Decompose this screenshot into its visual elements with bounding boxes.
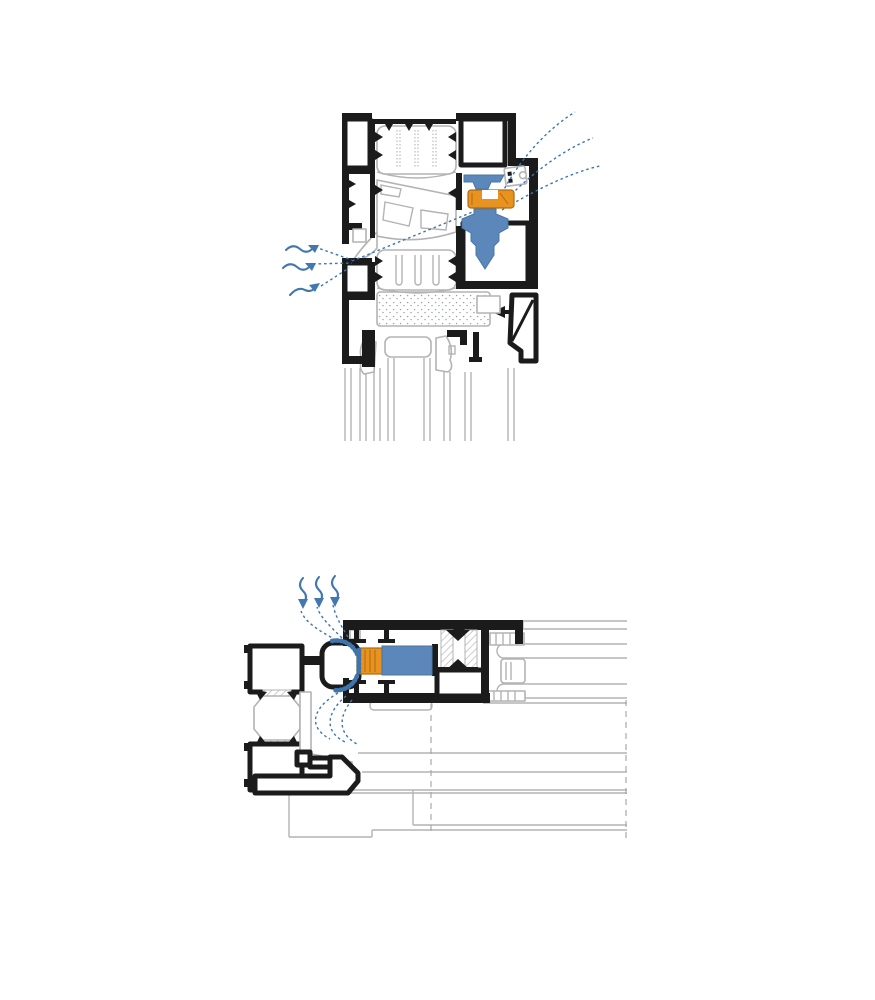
top-diagram [283, 112, 600, 441]
bottom-diagram [244, 576, 627, 838]
insulation-foam-block [377, 292, 490, 326]
diagram-canvas [0, 0, 875, 1000]
brush-seal-block [360, 648, 382, 674]
gasket-comb-bottom [487, 691, 525, 701]
frame-profile [244, 630, 360, 793]
glazing-bead [477, 295, 536, 361]
air-inlet-arrows [283, 245, 320, 295]
vent-valve-cap [464, 175, 504, 189]
glass-spacer-bar [385, 337, 431, 357]
thermal-break-octagon [254, 696, 300, 740]
glazing-unit-bottom [487, 621, 627, 701]
center-gasket [377, 180, 456, 240]
thermal-break-bar [441, 630, 453, 670]
diagram-page [0, 0, 875, 1000]
air-outlet-arrows [298, 576, 340, 609]
vent-insert-blue [382, 646, 432, 675]
thermal-break-bar [465, 630, 477, 670]
glass-spacer-bar [501, 659, 525, 683]
